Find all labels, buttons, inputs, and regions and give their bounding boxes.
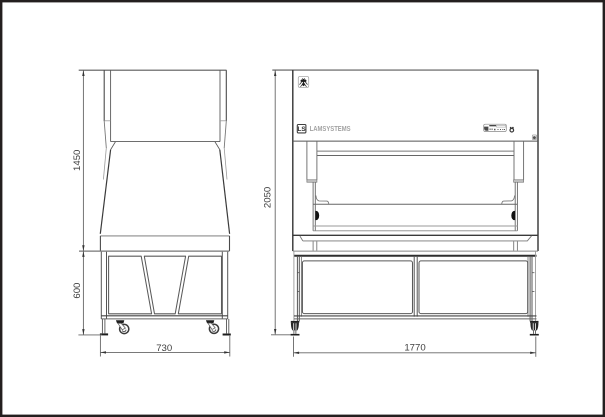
svg-text:LAMSYSTEMS: LAMSYSTEMS [310,126,351,133]
svg-text:LS: LS [298,126,307,133]
svg-text:600: 600 [72,283,83,299]
svg-text:1770: 1770 [404,342,425,353]
svg-text:730: 730 [156,343,172,354]
svg-text:2050: 2050 [262,187,273,208]
svg-text:1450: 1450 [72,150,83,171]
